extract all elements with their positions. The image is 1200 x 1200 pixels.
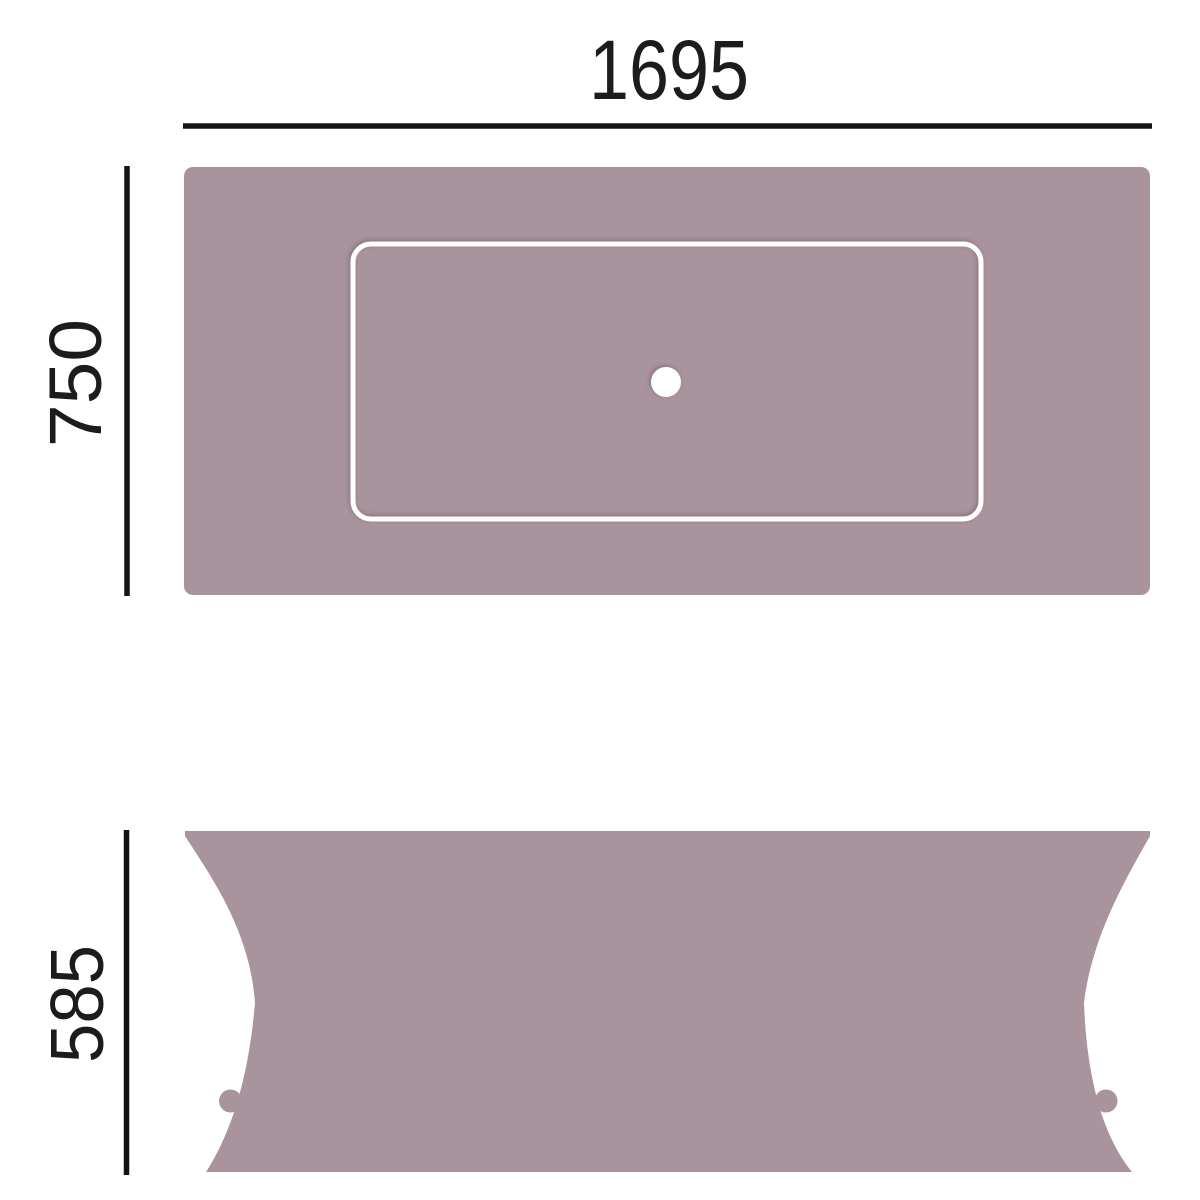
svg-text:1695: 1695 (589, 23, 749, 117)
svg-text:585: 585 (35, 945, 119, 1063)
svg-text:750: 750 (34, 319, 117, 447)
